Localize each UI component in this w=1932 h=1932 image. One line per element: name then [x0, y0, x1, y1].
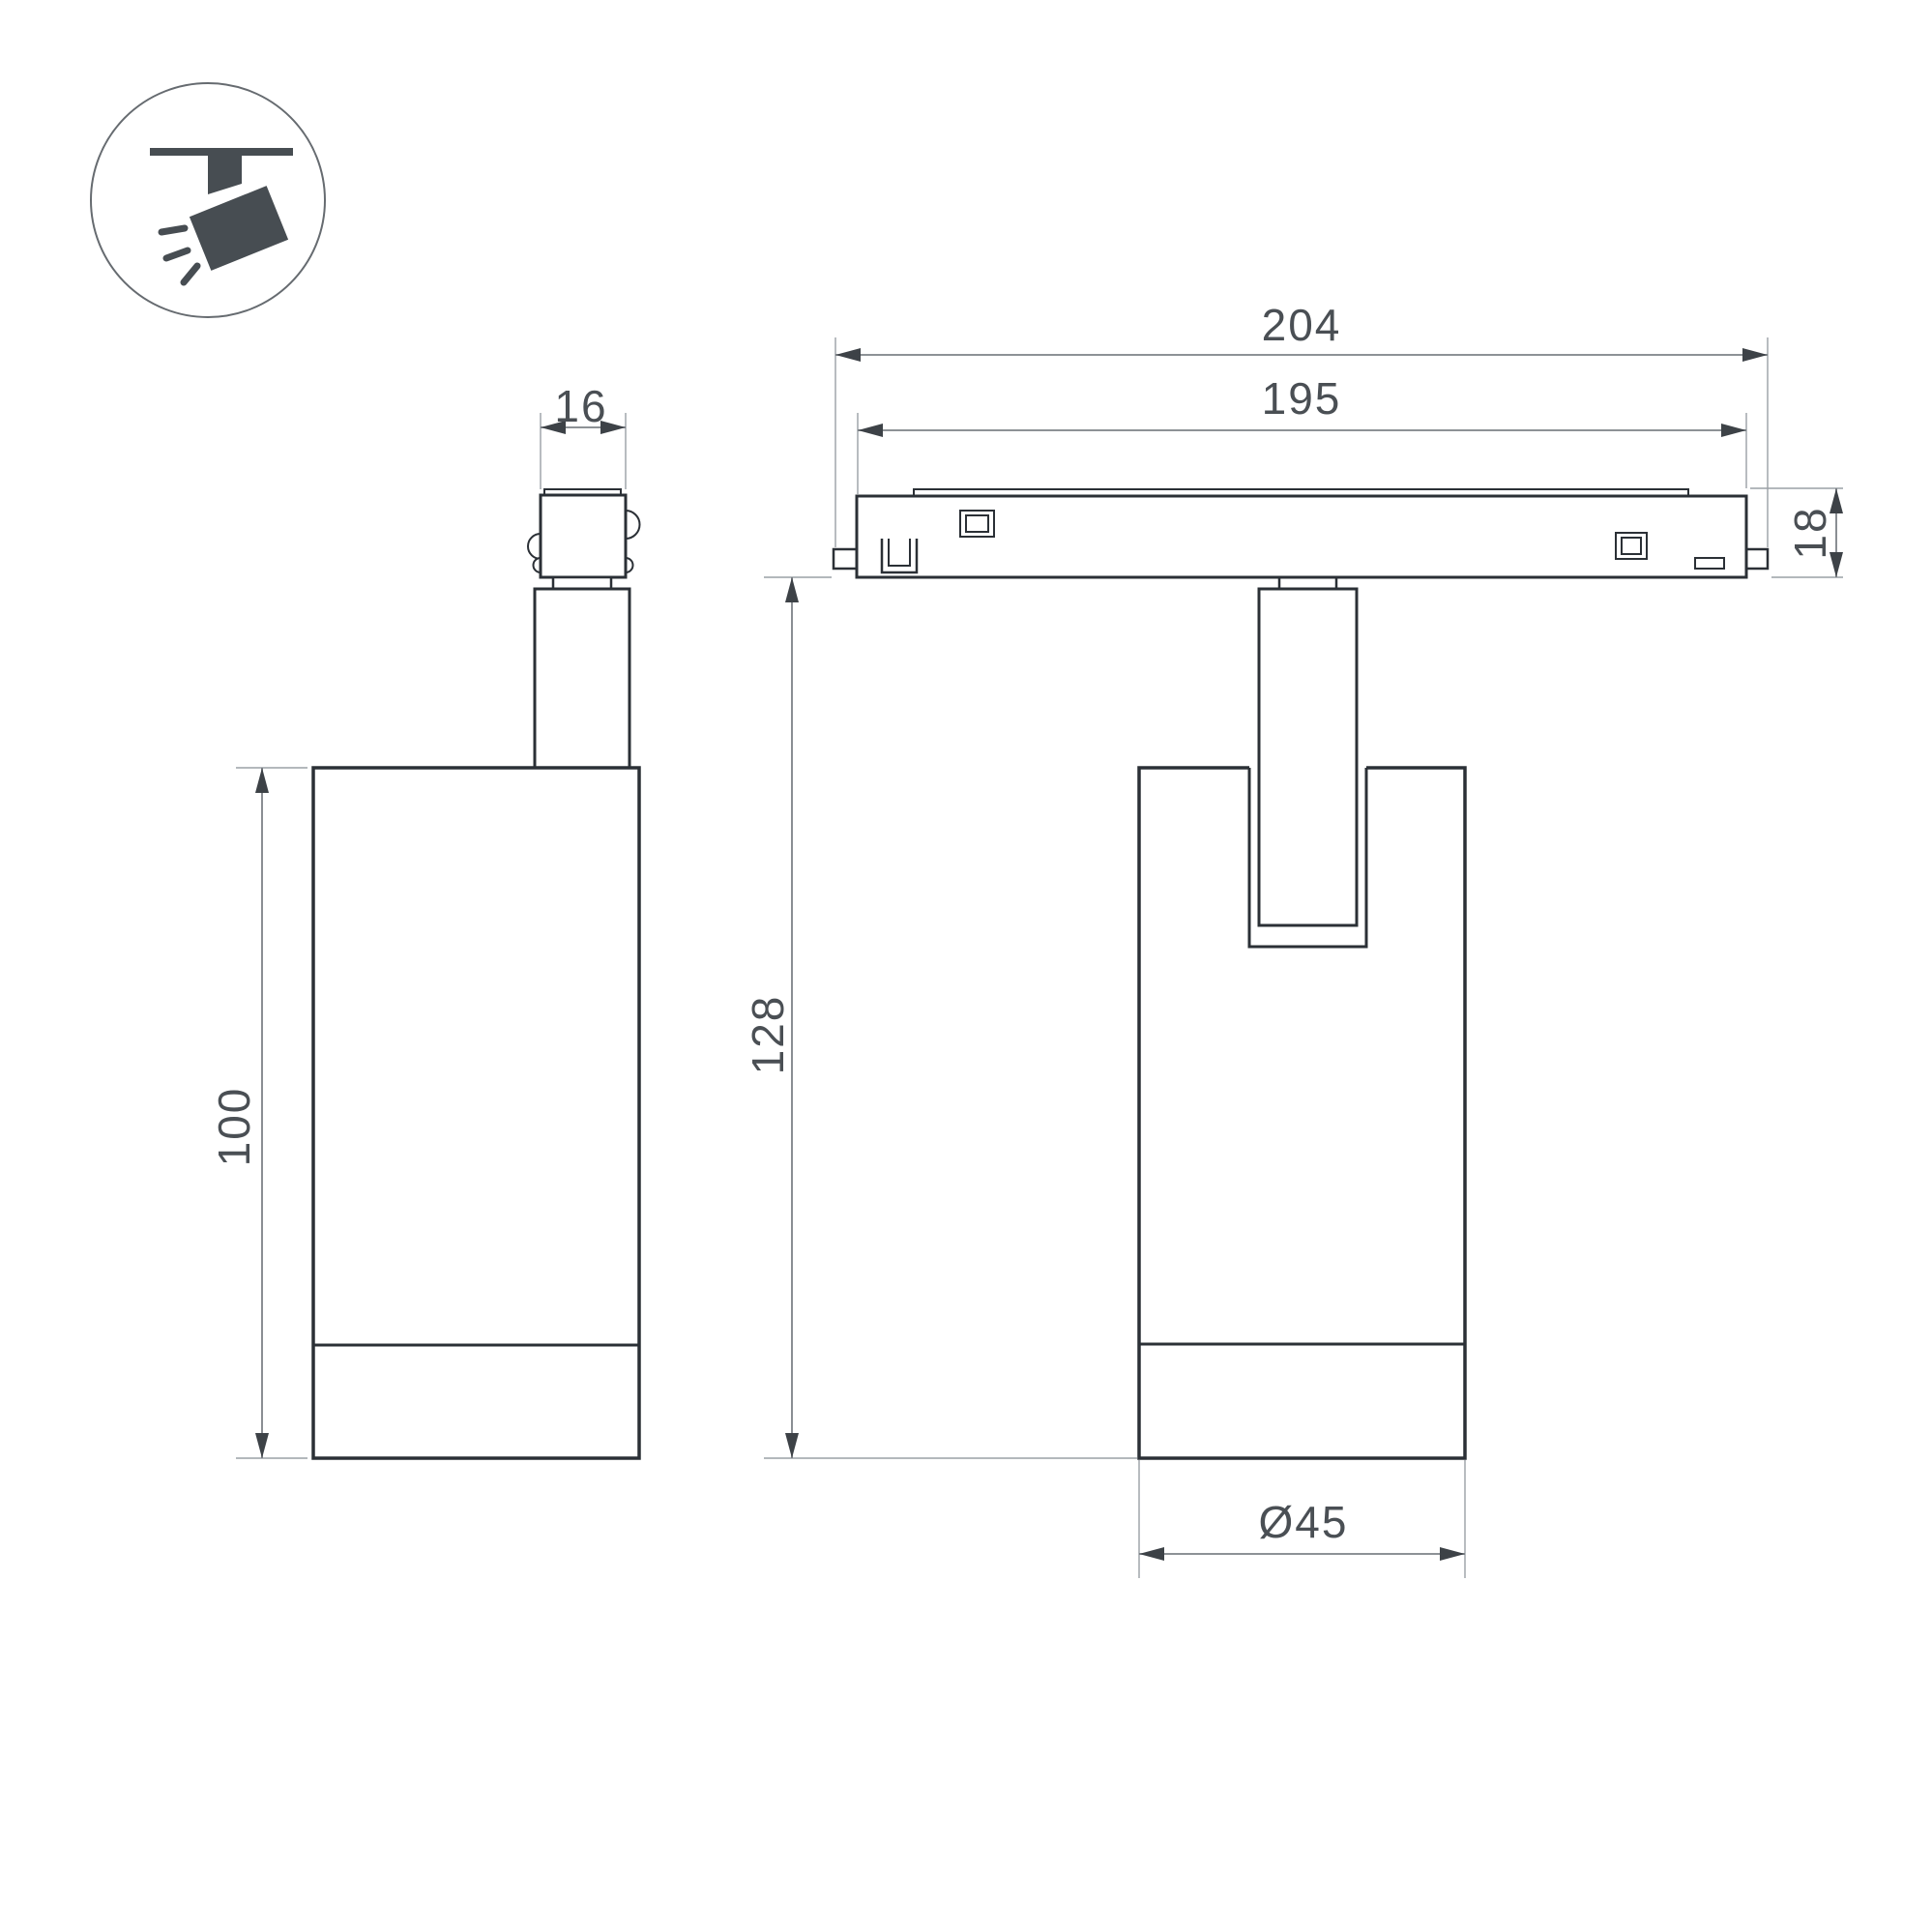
adapter-ear-left-large: [528, 534, 541, 559]
adapter-ear-right-large: [626, 511, 640, 539]
drawing-canvas: 16 100 204 195 18: [0, 0, 1932, 1932]
icon-circle: [91, 83, 325, 317]
dim-label-195: 195: [1262, 373, 1342, 424]
stem-side: [535, 589, 629, 768]
side-view: [313, 489, 640, 1458]
dim-label-128: 128: [743, 995, 793, 1075]
technical-drawing: 16 100 204 195 18: [0, 0, 1932, 1932]
track-contact-left-inner: [966, 515, 988, 532]
track-end-tab-right: [1746, 549, 1768, 569]
spotlight-body-side: [313, 768, 639, 1458]
neck-side: [553, 577, 611, 589]
front-view-on-track: [834, 489, 1768, 1458]
track-contact-right-inner: [1622, 538, 1641, 554]
dimension-body-height: 100: [209, 768, 307, 1458]
track-connector-slot: [1695, 558, 1724, 569]
dim-label-18: 18: [1785, 506, 1835, 559]
icon-ceiling-track-line: [150, 148, 293, 156]
track-adapter-side: [541, 495, 626, 577]
dimension-adapter-width: 16: [541, 381, 626, 489]
dimension-body-diameter: Ø45: [1139, 1460, 1465, 1578]
track-spotlight-icon: [91, 83, 325, 317]
dim-label-204: 204: [1262, 300, 1342, 350]
track-end-tab-left: [834, 549, 857, 569]
dim-label-16: 16: [554, 381, 607, 431]
dim-label-d45: Ø45: [1259, 1497, 1349, 1547]
stem-front: [1259, 589, 1357, 925]
dimension-suspension-height: 128: [743, 577, 1137, 1458]
dimension-track-inner: 195: [858, 373, 1746, 494]
neck-front: [1279, 577, 1336, 589]
dim-label-100: 100: [209, 1087, 259, 1167]
